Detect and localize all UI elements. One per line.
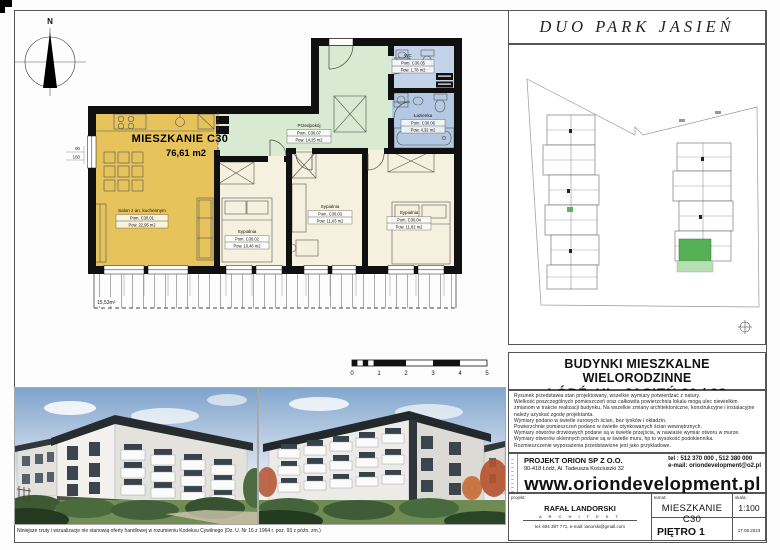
window-width-dim: 90 <box>75 146 80 151</box>
svg-text:Pom. C30.07: Pom. C30.07 <box>297 131 322 136</box>
building-header-box: BUDYNKI MIESZKALNE WIELORODZINNE ŁÓDŹ, U… <box>508 352 766 390</box>
svg-text:Pow. 10,46 m2: Pow. 10,46 m2 <box>233 243 261 248</box>
revision-sliver <box>509 454 518 492</box>
scale-bar: 0 1 2 3 4 5 <box>350 360 489 377</box>
title-block-scale-cell: skala: 1:100 17.08.2023 <box>732 494 765 540</box>
title-block-table: projekt: RAFAŁ LANDORSKI A R C H I T E K… <box>508 493 766 541</box>
svg-text:Pom. C30.06: Pom. C30.06 <box>411 121 436 126</box>
svg-text:Pow. 1,78 m2: Pow. 1,78 m2 <box>401 67 427 72</box>
svg-text:Pow. 4,32 m2: Pow. 4,32 m2 <box>411 127 437 132</box>
svg-text:Pow. 11,03 m2: Pow. 11,03 m2 <box>317 218 344 223</box>
title-block-subject-cell: temat: MIESZKANIE C30 PIĘTRO 1 <box>651 494 732 540</box>
balcony: 15,53m² <box>94 274 456 308</box>
room-label-bedroom1: Sypialnia <box>238 229 257 234</box>
site-highlighted-terrace <box>677 261 713 272</box>
company-email: e-mail: oriondevelopment@o2.pl <box>668 463 761 469</box>
svg-text:5: 5 <box>485 371 489 377</box>
site-plan-box <box>508 44 766 345</box>
col-label-skala: skala: <box>735 495 747 500</box>
building-photo-2 <box>259 388 505 524</box>
svg-text:2: 2 <box>404 371 408 377</box>
site-building-left <box>543 115 599 289</box>
svg-text:Pow. 14,25 m2: Pow. 14,25 m2 <box>295 137 323 142</box>
note-line: Wielkość poszczególnych pomieszczeń oraz… <box>514 399 760 418</box>
project-title-box: DUO PARK JASIEŃ <box>508 10 766 44</box>
svg-text:4: 4 <box>458 371 462 377</box>
site-highlighted-unit <box>679 239 711 261</box>
svg-text:Pom. C30.01: Pom. C30.01 <box>130 216 155 221</box>
window-height-dim: 160 <box>73 155 81 160</box>
floor-label: PIĘTRO 1 <box>652 518 732 538</box>
room-label-bedroom2: Sypialnia <box>321 204 340 209</box>
svg-text:Pow. 11,82 m2: Pow. 11,82 m2 <box>396 224 423 229</box>
room-label-salon: Salon z an. kuchennym <box>118 208 166 213</box>
company-address: 90-418 Łódź, Al. Tadeusza Kościuszki 32 <box>524 466 624 472</box>
room-label-bath: Łazienka <box>414 113 433 118</box>
project-title: DUO PARK JASIEŃ <box>509 11 765 43</box>
building-photo-1 <box>15 388 257 524</box>
compass-needle <box>43 32 57 88</box>
architect-contact: tel. 604 397 771, e-mail: lanorski@gmail… <box>509 524 651 529</box>
company-name: PROJEKT ORION SP Z O.O. <box>524 456 624 465</box>
building-header-line1: BUDYNKI MIESZKALNE WIELORODZINNE <box>509 357 765 385</box>
title-block-architect-cell: projekt: RAFAŁ LANDORSKI A R C H I T E K… <box>509 494 651 540</box>
room-bedroom-1 <box>218 156 288 268</box>
col-label-temat: temat: <box>654 495 667 500</box>
svg-text:3: 3 <box>431 371 435 377</box>
plan-sheet: { "title": "DUO PARK JASIEŃ", "plan": { … <box>0 0 780 550</box>
svg-text:1: 1 <box>377 371 381 377</box>
note-line: Rozmieszczenie wyposażenia przedstawione… <box>514 443 760 449</box>
svg-text:Pow. 22,95 m2: Pow. 22,95 m2 <box>128 222 156 227</box>
svg-text:Pom. C30.05: Pom. C30.05 <box>401 61 426 66</box>
architect-title: A R C H I T E K T <box>523 514 637 521</box>
room-label-wc: WC <box>404 53 412 58</box>
svg-text:Pom. C30.04: Pom. C30.04 <box>397 218 422 223</box>
svg-text:Pom. C30.02: Pom. C30.02 <box>235 237 260 242</box>
architect-name: RAFAŁ LANDORSKI <box>509 504 651 513</box>
site-building-right <box>673 143 733 272</box>
compass-rose: N <box>14 17 86 96</box>
company-box: PROJEKT ORION SP Z O.O. 90-418 Łódź, Al.… <box>508 453 766 493</box>
room-label-hall: Przedpokój <box>298 123 321 128</box>
legal-disclaimer: Niniejsze rzuty i wizualizacje nie stano… <box>17 528 497 534</box>
company-website: www.oriondevelopment.pl <box>524 473 761 495</box>
notes-box: Rysunek przedstawia stan projektowany, w… <box>508 390 766 453</box>
room-label-bedroom3: Sypialnia <box>400 210 419 215</box>
svg-text:0: 0 <box>350 371 354 377</box>
room-fills <box>92 44 456 270</box>
room-bedroom-3 <box>366 150 456 268</box>
date-value: 17.08.2023 <box>733 518 765 533</box>
site-compass-icon <box>738 320 752 334</box>
site-plan <box>509 45 765 344</box>
company-phone: tel : 512 370 000 , 512 380 000 <box>668 456 761 462</box>
apartment-label: MIESZKANIE C30 <box>132 133 229 145</box>
svg-text:Pom. C30.03: Pom. C30.03 <box>318 212 343 217</box>
balcony-area-label: 15,53m² <box>97 300 116 306</box>
apartment-area: 76,61 m2 <box>166 148 206 159</box>
compass-north-label: N <box>47 17 53 26</box>
col-label-projekt: projekt: <box>511 495 526 500</box>
